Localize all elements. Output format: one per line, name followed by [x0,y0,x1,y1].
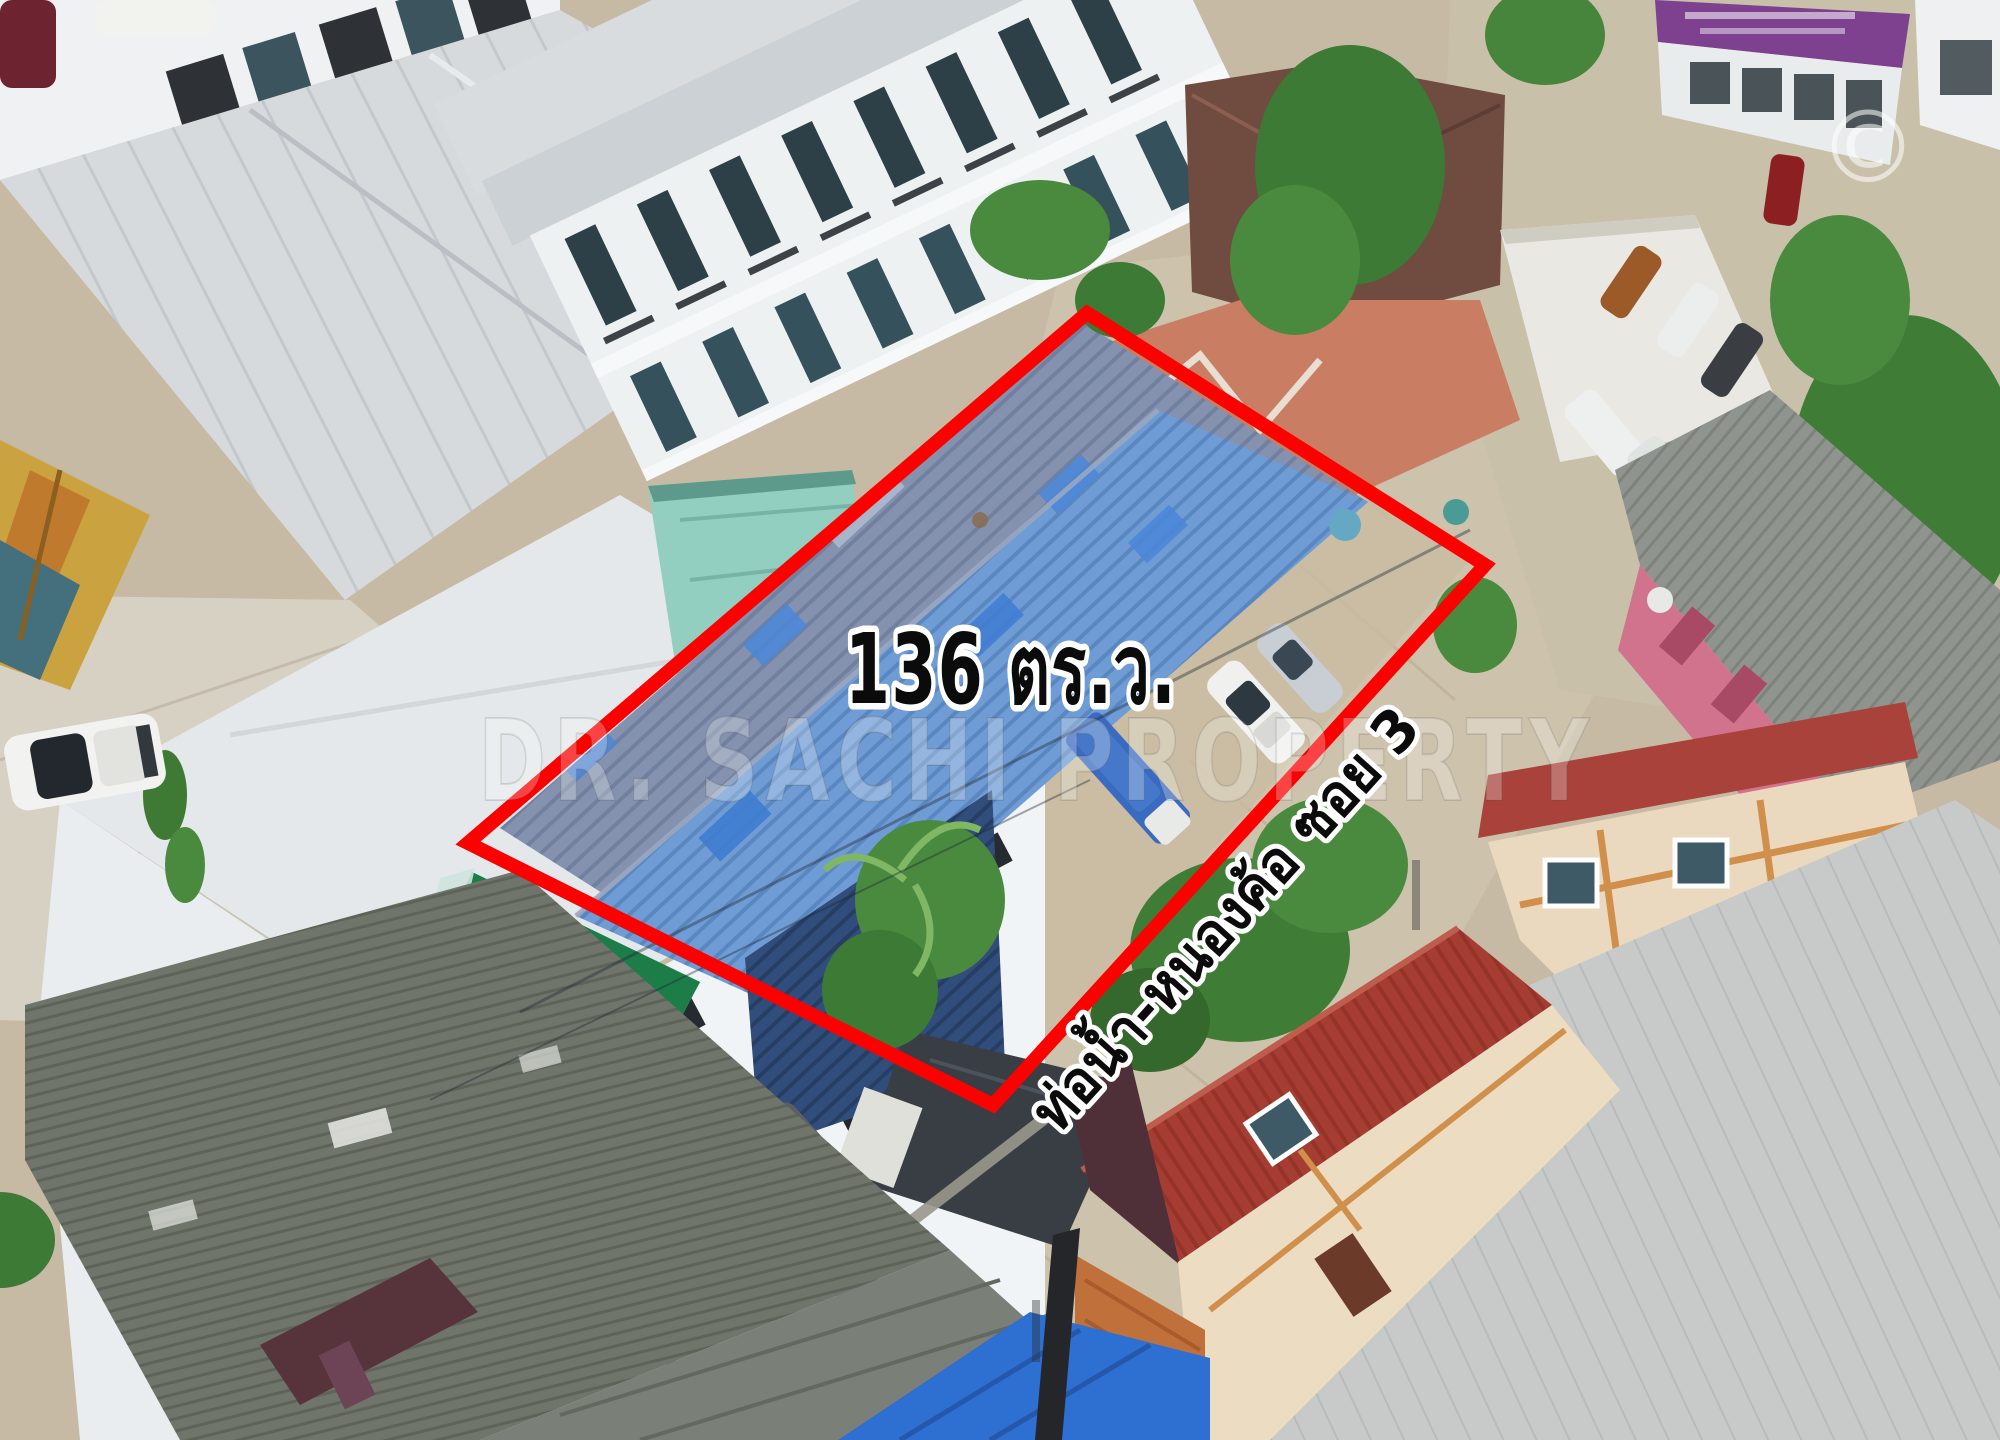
aerial-photo: DR. SACHI PROPERTY 136 ตร.ว. ท่อน้ำ-หนอง… [0,0,2000,1440]
copyright-mark: © [1818,89,1918,206]
area-label: 136 ตร.ว. [845,613,1177,726]
photo-scene: DR. SACHI PROPERTY 136 ตร.ว. ท่อน้ำ-หนอง… [0,0,2000,1440]
